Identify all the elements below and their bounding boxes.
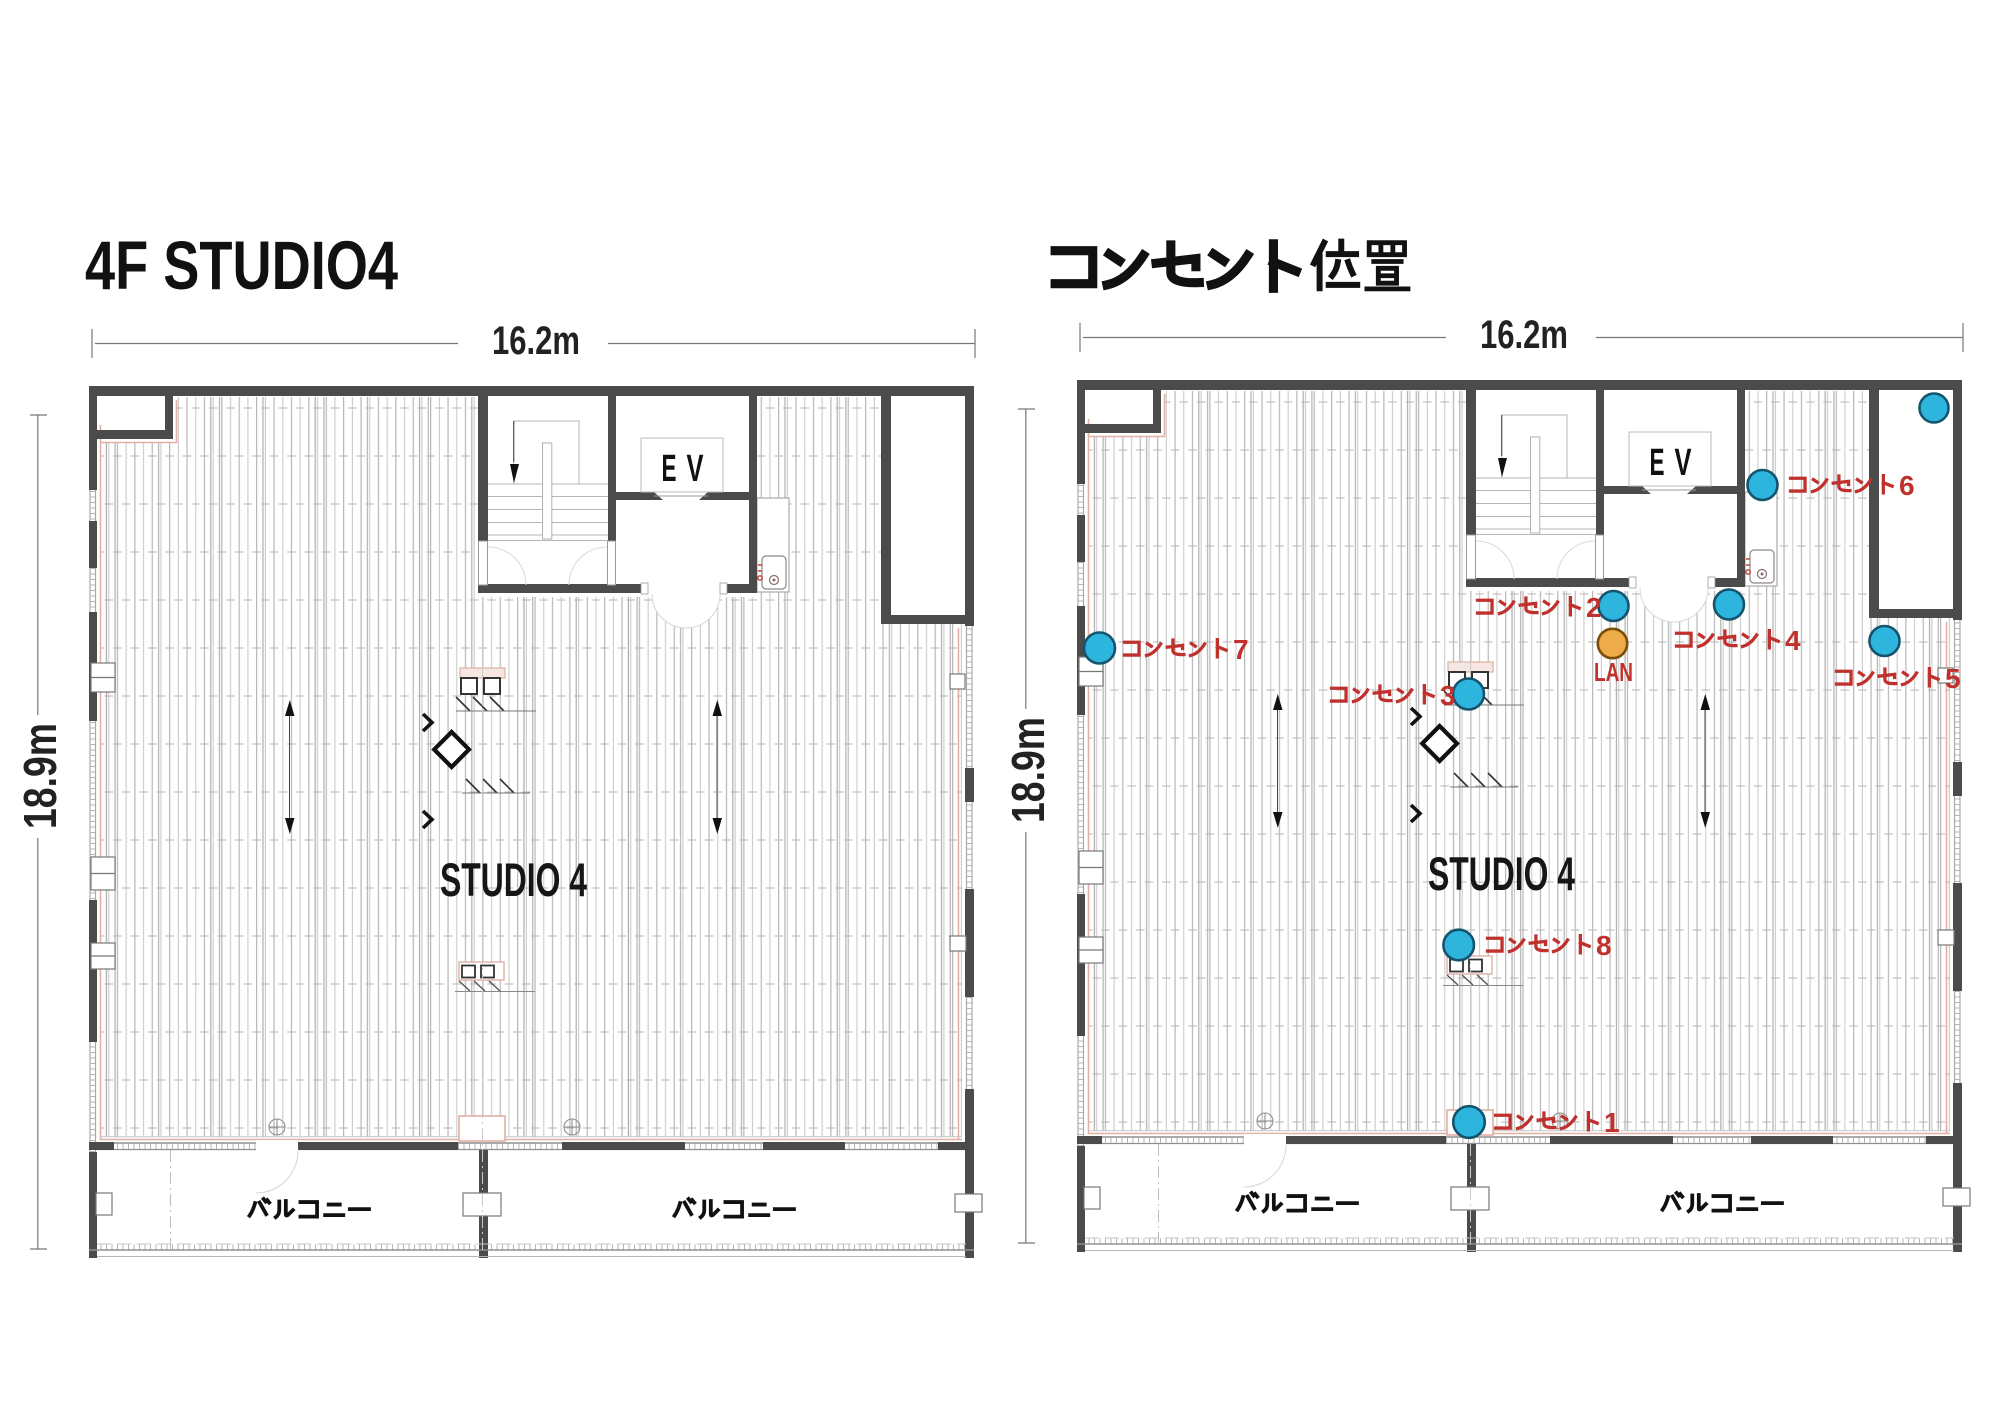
svg-text:4F STUDIO4: 4F STUDIO4 [85, 227, 398, 304]
svg-text:LAN: LAN [1594, 657, 1633, 687]
svg-text:1: 1 [1604, 1107, 1620, 1138]
svg-text:3: 3 [1440, 680, 1456, 711]
svg-text:8: 8 [1596, 930, 1612, 961]
svg-text:6: 6 [1899, 470, 1915, 501]
svg-text:5: 5 [1945, 663, 1961, 694]
svg-text:4: 4 [1785, 625, 1801, 656]
svg-text:2: 2 [1586, 592, 1602, 623]
svg-text:7: 7 [1233, 634, 1249, 665]
